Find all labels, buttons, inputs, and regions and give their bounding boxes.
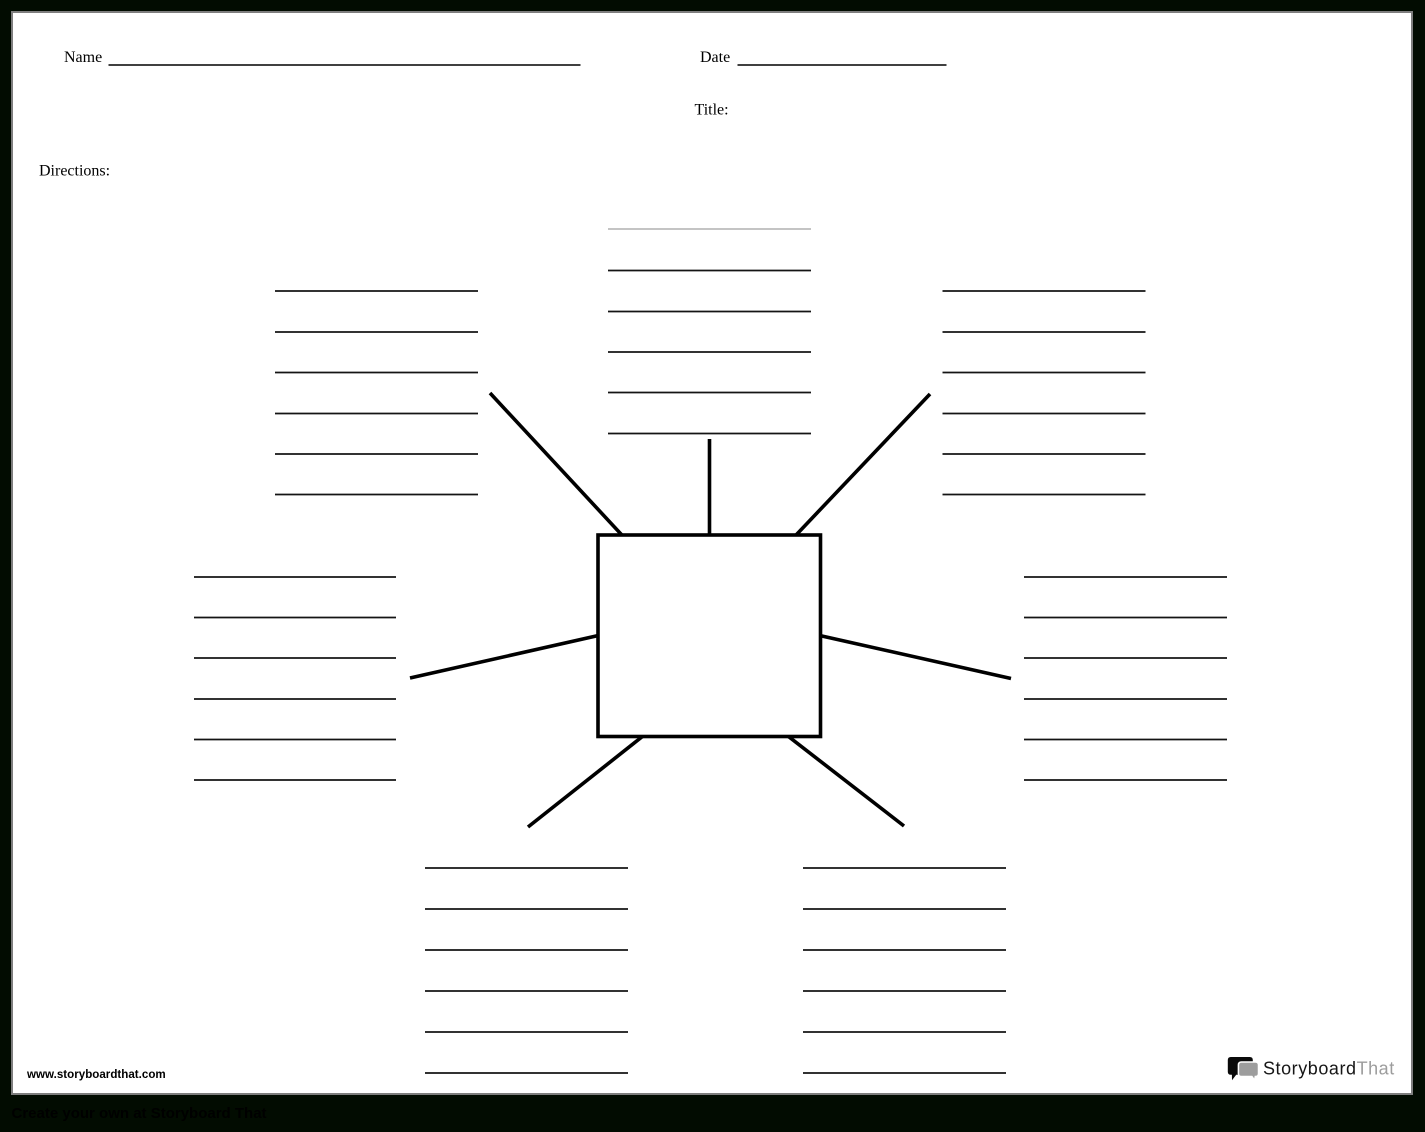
svg-text:www.storyboardthat.com: www.storyboardthat.com [26, 1068, 166, 1081]
svg-text:Name: Name [64, 49, 102, 66]
svg-text:Date: Date [700, 49, 730, 66]
svg-text:StoryboardThat: StoryboardThat [1263, 1059, 1395, 1079]
svg-text:Directions:: Directions: [39, 163, 110, 180]
svg-text:Create your own at Storyboard: Create your own at Storyboard That [12, 1105, 267, 1122]
svg-text:Title:: Title: [695, 102, 729, 119]
